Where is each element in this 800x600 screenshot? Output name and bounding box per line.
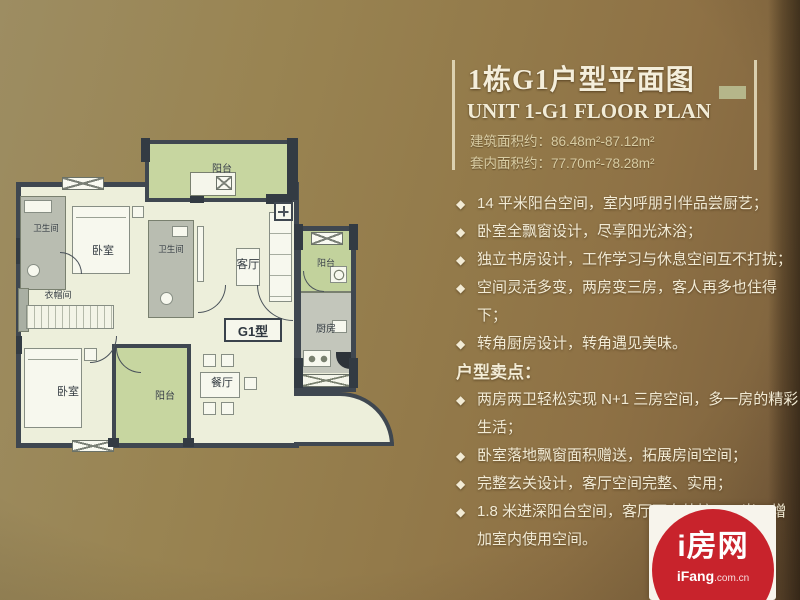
logo-site-url: iFang.com.cn <box>652 568 774 586</box>
entry-flare-wall <box>294 392 394 446</box>
room-label-living: 客厅 <box>222 259 274 272</box>
room-label-closet: 衣帽间 <box>30 291 86 301</box>
pillow-line <box>76 217 126 218</box>
room-label-balcony-bottom: 阳台 <box>140 391 190 402</box>
built-area-text: 建筑面积约：86.48m²-87.12m² <box>470 130 655 150</box>
room-label-balcony-right: 阳台 <box>301 259 351 269</box>
wall-chunk <box>349 224 358 250</box>
feature-item: ◆转角厨房设计，转角遇见美味。 <box>456 330 800 358</box>
selling-point-text: 两房两卫轻松实现 N+1 三房空间，多一房的精彩生活； <box>477 391 798 436</box>
feature-text: 空间灵活多变，两房变三房，客人再多也住得下； <box>477 279 777 324</box>
selling-points-heading: 户型卖点： <box>456 362 800 384</box>
wall-chunk <box>108 438 119 447</box>
page-title: 1栋G1户型平面图 <box>468 58 695 98</box>
selling-point-item: ◆完整玄关设计，客厅空间完整、实用； <box>456 470 800 498</box>
selling-point-item: ◆卧室落地飘窗面积赠送，拓展房间空间； <box>456 442 800 470</box>
wall-chunk <box>294 358 303 388</box>
pillow-line <box>28 359 78 360</box>
logo-site-main: iFang <box>677 568 714 584</box>
feature-text: 14 平米阳台空间，室内呼朋引伴品尝厨艺； <box>477 195 768 212</box>
toilet-symbol <box>160 292 173 305</box>
window-symbol <box>311 232 343 245</box>
title-rule-left <box>452 60 455 170</box>
diamond-bullet-icon: ◆ <box>456 386 465 414</box>
selling-point-text: 完整玄关设计，客厅空间完整、实用； <box>477 475 732 492</box>
feature-text: 卧室全飘窗设计，尽享阳光沐浴； <box>477 223 702 240</box>
unit-type-badge: G1型 <box>224 318 282 342</box>
wall-chunk <box>141 138 150 162</box>
diamond-bullet-icon: ◆ <box>456 274 465 302</box>
wall-chunk <box>183 438 194 447</box>
feature-item: ◆14 平米阳台空间，室内呼朋引伴品尝厨艺； <box>456 190 800 218</box>
selling-point-text: 卧室落地飘窗面积赠送，拓展房间空间； <box>477 447 747 464</box>
inner-area-text: 套内面积约：77.70m²-78.28m² <box>470 152 655 172</box>
logo-site-suffix: .com.cn <box>714 573 749 584</box>
ac-symbol-icon <box>216 176 232 190</box>
title-rule-right <box>754 60 757 170</box>
wall-chunk <box>16 336 22 354</box>
chair-symbol <box>221 402 234 415</box>
bed-symbol <box>72 206 130 274</box>
sink-symbol <box>172 226 188 237</box>
toilet-symbol <box>27 264 40 277</box>
chair-symbol <box>203 402 216 415</box>
feature-text: 转角厨房设计，转角遇见美味。 <box>477 335 687 352</box>
feature-list-section: ◆14 平米阳台空间，室内呼朋引伴品尝厨艺； ◆卧室全飘窗设计，尽享阳光沐浴； … <box>456 190 800 554</box>
feature-item: ◆卧室全飘窗设计，尽享阳光沐浴； <box>456 218 800 246</box>
selling-point-item: ◆两房两卫轻松实现 N+1 三房空间，多一房的精彩生活； <box>456 386 800 442</box>
feature-item: ◆独立书房设计，工作学习与休息空间互不打扰； <box>456 246 800 274</box>
wall-chunk <box>287 138 298 200</box>
nightstand-symbol <box>132 206 144 218</box>
diamond-bullet-icon: ◆ <box>456 498 465 526</box>
diamond-bullet-icon: ◆ <box>456 330 465 358</box>
column-flue-icon <box>274 202 293 221</box>
diamond-bullet-icon: ◆ <box>456 442 465 470</box>
feature-item: ◆空间灵活多变，两房变三房，客人再多也住得下； <box>456 274 800 330</box>
wardrobe-symbol <box>26 305 114 329</box>
title-accent-chip <box>719 86 746 99</box>
fridge-space-hatch <box>301 374 351 387</box>
brochure-photo-page: 阳台 卫生间 卧室 卫生间 衣帽间 客厅 阳台 厨房 卧室 阳台 餐厅 G1型 … <box>0 0 800 600</box>
tv-bench-symbol <box>197 226 204 282</box>
chair-symbol <box>221 354 234 367</box>
logo-brand-name: i房网 <box>652 521 774 565</box>
wall-chunk <box>349 358 358 388</box>
room-label-bath-mid: 卫生间 <box>148 245 194 254</box>
diamond-bullet-icon: ◆ <box>456 246 465 274</box>
diamond-bullet-icon: ◆ <box>456 218 465 246</box>
wall-chunk <box>294 224 303 250</box>
page-subtitle: UNIT 1-G1 FLOOR PLAN <box>467 99 711 124</box>
room-label-kitchen: 厨房 <box>301 324 351 335</box>
feature-list: ◆14 平米阳台空间，室内呼朋引伴品尝厨艺； ◆卧室全飘窗设计，尽享阳光沐浴； … <box>456 190 800 358</box>
room-label-bedroom-top: 卧室 <box>80 245 126 257</box>
room-label-dining: 餐厅 <box>196 377 248 389</box>
stove-symbol <box>303 350 331 367</box>
feature-text: 独立书房设计，工作学习与休息空间互不打扰； <box>477 251 792 268</box>
room-label-bedroom-bottom: 卧室 <box>45 386 91 398</box>
window-symbol <box>62 177 104 190</box>
diamond-bullet-icon: ◆ <box>456 470 465 498</box>
room-label-balcony-top: 阳台 <box>196 164 248 175</box>
chair-symbol <box>203 354 216 367</box>
room-label-bath-left: 卫生间 <box>24 224 68 233</box>
shower-symbol <box>24 200 52 213</box>
diamond-bullet-icon: ◆ <box>456 190 465 218</box>
